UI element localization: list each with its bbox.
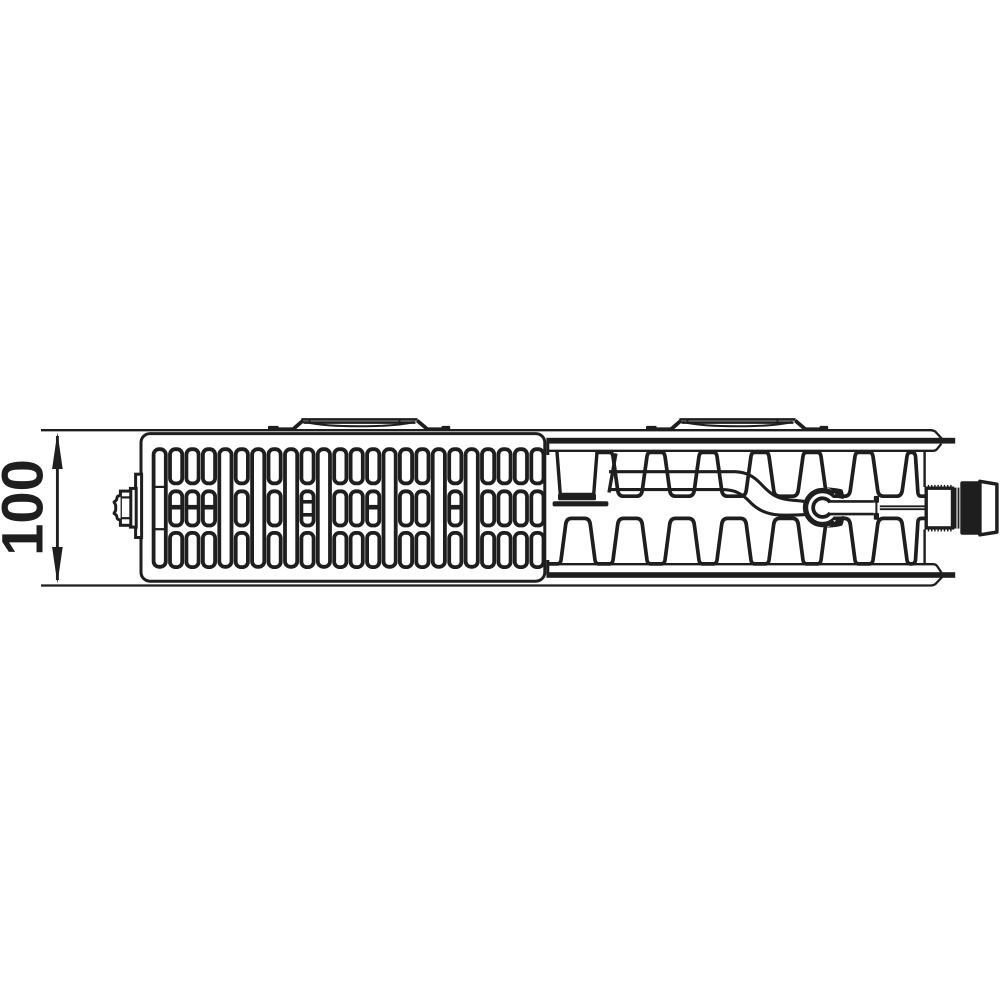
svg-text:100: 100: [0, 459, 56, 556]
